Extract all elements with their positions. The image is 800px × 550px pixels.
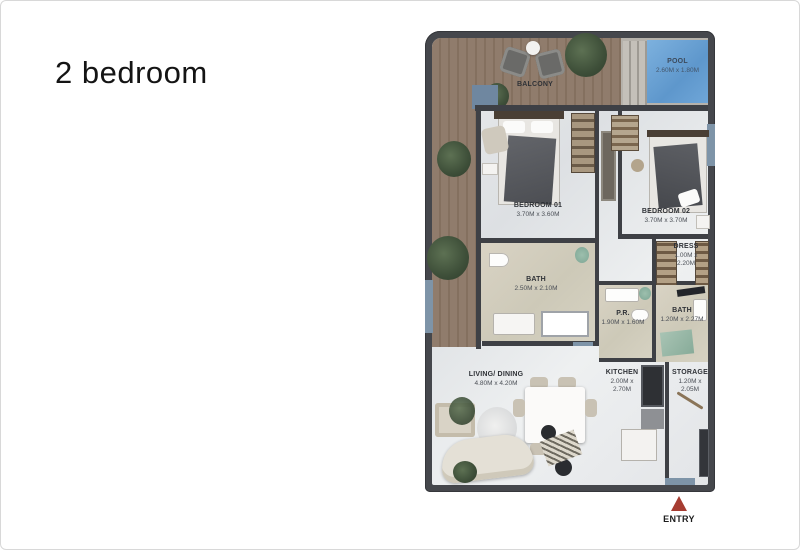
entry-arrow-icon xyxy=(671,496,687,511)
pool-label: POOL 2.60M x 1.80M xyxy=(647,58,708,75)
wall xyxy=(621,105,708,111)
headboard xyxy=(494,111,564,119)
bath-plant xyxy=(575,247,589,263)
toilet xyxy=(489,253,509,267)
storage-dims: 1.20M x 2.05M xyxy=(671,378,709,394)
vanity-sink xyxy=(493,313,535,335)
balcony-name: BALCONY xyxy=(505,81,565,88)
storage-name: STORAGE xyxy=(671,369,709,378)
shower-mat xyxy=(660,329,694,356)
kitchen-sink-counter xyxy=(621,429,657,461)
storage-label: STORAGE 1.20M x 2.05M xyxy=(671,369,709,394)
bath1-label: BATH 2.50M x 2.10M xyxy=(493,276,579,293)
entry-threshold xyxy=(665,478,695,485)
dining-chair xyxy=(585,399,597,417)
door-threshold xyxy=(573,342,593,346)
kitchen-counter xyxy=(641,409,664,429)
dining-chair xyxy=(513,399,525,417)
entry-label: ENTRY xyxy=(655,514,703,524)
window xyxy=(425,280,433,333)
pool-name: POOL xyxy=(647,58,708,67)
bath1-dims: 2.50M x 2.10M xyxy=(493,285,579,293)
bedroom1-name: BEDROOM 01 xyxy=(495,202,581,211)
pr-name: P.R. xyxy=(597,310,649,319)
armchair xyxy=(481,125,510,155)
tree xyxy=(565,33,607,77)
headboard xyxy=(647,130,709,137)
dress-label: DRESS 1.00M x 2.20M xyxy=(673,243,699,268)
wardrobe xyxy=(571,113,595,173)
shoe-cabinet xyxy=(699,429,709,477)
indoor-plant xyxy=(449,397,475,425)
pillow xyxy=(503,121,525,133)
stool xyxy=(631,159,644,172)
bedroom1-dims: 3.70M x 3.60M xyxy=(495,211,581,219)
shower-tray xyxy=(541,311,589,337)
bedroom1-label: BEDROOM 01 3.70M x 3.60M xyxy=(495,202,581,219)
bedroom2-dims: 3.70M x 3.70M xyxy=(623,217,709,225)
bed-bedroom2 xyxy=(649,133,707,213)
pillow xyxy=(531,121,553,133)
dress-name: DRESS xyxy=(673,243,699,252)
pr-plant xyxy=(639,287,651,300)
kitchen-name: KITCHEN xyxy=(601,369,643,378)
page-title: 2 bedroom xyxy=(55,55,208,91)
pool-steps xyxy=(623,41,647,106)
floor-plan: POOL 2.60M x 1.80M BALCONY BEDROOM 01 3.… xyxy=(425,31,715,492)
bath2-label: BATH 1.20M x 2.27M xyxy=(655,307,709,324)
pr-sink xyxy=(605,288,639,302)
living-label: LIVING/ DINING 4.80M x 4.20M xyxy=(453,371,539,388)
balcony-table xyxy=(526,41,540,55)
blanket xyxy=(504,135,556,204)
side-table xyxy=(482,163,498,175)
dress-dims: 1.00M x 2.20M xyxy=(673,252,699,268)
fridge xyxy=(641,365,664,407)
pool-dims: 2.60M x 1.80M xyxy=(647,67,708,75)
bed-bedroom1 xyxy=(498,113,560,205)
wall xyxy=(665,362,669,478)
bath2-dims: 1.20M x 2.27M xyxy=(655,316,709,324)
floor-plant xyxy=(453,461,477,483)
kitchen-label: KITCHEN 2.00M x 2.70M xyxy=(601,369,643,394)
wardrobe-bedroom2 xyxy=(611,115,639,151)
pr-label: P.R. 1.90M x 1.60M xyxy=(597,310,649,327)
plant xyxy=(427,236,469,280)
bath2-name: BATH xyxy=(655,307,709,316)
bedroom2-label: BEDROOM 02 3.70M x 3.70M xyxy=(623,208,709,225)
pr-dims: 1.90M x 1.60M xyxy=(597,319,649,327)
bath1-name: BATH xyxy=(493,276,579,285)
kitchen-dims: 2.00M x 2.70M xyxy=(601,378,643,394)
wall xyxy=(622,234,708,239)
bedroom2-name: BEDROOM 02 xyxy=(623,208,709,217)
plant xyxy=(437,141,471,177)
living-name: LIVING/ DINING xyxy=(453,371,539,380)
